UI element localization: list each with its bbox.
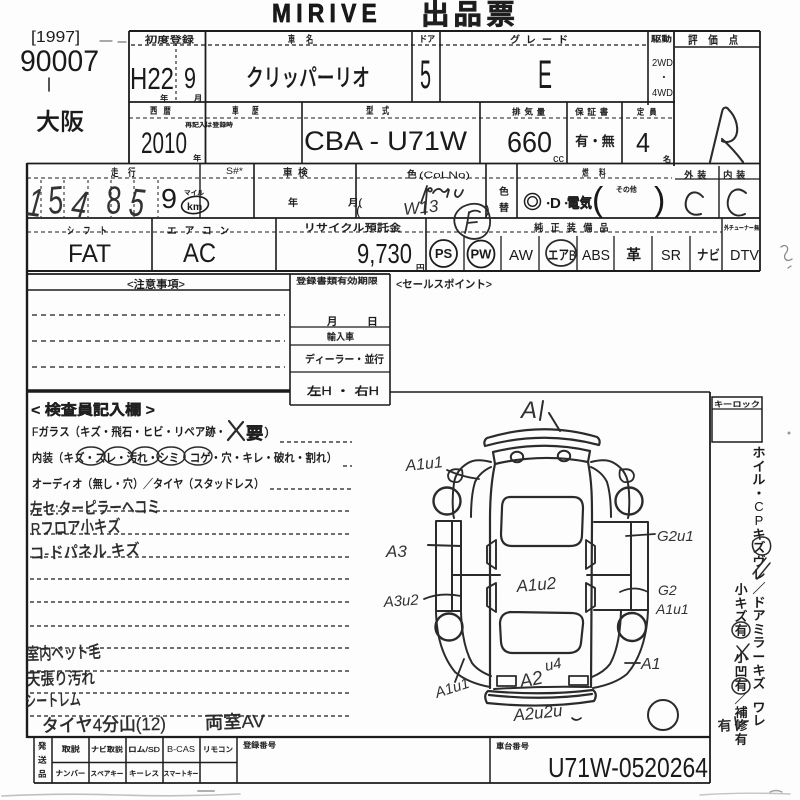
svg-text:A1: A1: [640, 656, 661, 673]
svg-text:): ): [654, 181, 665, 219]
svg-text:駆動: 駆動: [650, 33, 673, 45]
svg-text:車名: 車名: [288, 32, 324, 47]
svg-text:排気量: 排気量: [511, 105, 549, 118]
svg-text:AC: AC: [183, 238, 216, 268]
svg-text:その他: その他: [616, 184, 637, 195]
svg-text:有・無: 有・無: [575, 131, 615, 151]
svg-text:日: 日: [367, 314, 378, 329]
svg-text:A2u2u: A2u2u: [511, 701, 563, 725]
svg-text:CBA - U71W: CBA - U71W: [304, 126, 468, 156]
svg-text:初度登録: 初度登録: [145, 32, 195, 46]
svg-text:ナンバー: ナンバー: [56, 768, 86, 779]
svg-text:<注意事項>: <注意事項>: [127, 276, 185, 292]
svg-text:月: 月: [326, 314, 338, 329]
svg-text:S#*: S#*: [226, 166, 243, 177]
svg-text:Rフロア小キズ: Rフロア小キズ: [30, 512, 121, 540]
svg-text:2WD: 2WD: [652, 57, 673, 69]
svg-text:スマートキー: スマートキー: [164, 769, 199, 779]
svg-text:W13: W13: [402, 196, 439, 219]
svg-text:G2u1: G2u1: [657, 528, 694, 545]
svg-text:5: 5: [420, 53, 431, 97]
svg-text:スペアキー: スペアキー: [91, 769, 124, 779]
svg-text:<セールスポイント>: <セールスポイント>: [396, 276, 492, 292]
svg-text:G2: G2: [658, 582, 677, 598]
svg-text:両室AV: 両室AV: [204, 707, 265, 735]
svg-text:A3u2: A3u2: [382, 592, 420, 612]
svg-text:ロム/SD: ロム/SD: [128, 744, 161, 755]
svg-text:8: 8: [105, 179, 123, 223]
svg-text:クリッパーリオ: クリッパーリオ: [246, 58, 370, 93]
svg-text:品: 品: [38, 768, 47, 780]
svg-text:タイヤ4分山(12): タイヤ4分山(12): [42, 710, 166, 738]
svg-text:ドア: ドア: [419, 32, 435, 45]
svg-text:(: (: [592, 181, 604, 219]
svg-text:リモコン: リモコン: [203, 744, 233, 755]
svg-text:ABS: ABS: [582, 247, 610, 264]
svg-text:9: 9: [161, 183, 177, 214]
svg-text:評価点: 評価点: [688, 32, 749, 48]
svg-text:大阪: 大阪: [36, 102, 84, 137]
svg-text:年: 年: [288, 194, 298, 209]
svg-text:A1u1: A1u1: [655, 601, 689, 617]
svg-text:保証書: 保証書: [574, 105, 612, 118]
svg-text:キーロック: キーロック: [714, 399, 760, 410]
svg-text:レ: レ: [752, 710, 765, 729]
svg-text:左H ・ 右H: 左H ・ 右H: [307, 383, 379, 399]
svg-text:有: 有: [734, 729, 747, 748]
svg-text:リサイクル預託金: リサイクル預託金: [304, 219, 401, 234]
svg-text:[1997]: [1997]: [31, 29, 80, 46]
svg-text:外装: 外装: [684, 167, 710, 181]
svg-text:登録番号: 登録番号: [243, 740, 276, 751]
svg-text:A: A: [519, 397, 537, 424]
svg-text:室内ペット毛: 室内ペット毛: [26, 637, 101, 665]
svg-text:Fガラス（キズ・飛石・ヒビ・リペア跡・: Fガラス（キズ・飛石・ヒビ・リペア跡・: [32, 423, 226, 440]
svg-text:有: 有: [717, 715, 732, 736]
svg-text:純正装備品: 純正装備品: [534, 219, 616, 234]
svg-text:取説: 取説: [62, 744, 80, 755]
svg-text:D: D: [550, 195, 561, 212]
svg-text:A1u1: A1u1: [404, 454, 444, 475]
svg-text:円: 円: [416, 261, 425, 274]
svg-text:MIRIVE: MIRIVE: [272, 0, 382, 28]
svg-text:型式: 型式: [366, 102, 398, 117]
svg-text:AW: AW: [509, 247, 534, 264]
svg-text:車台番号: 車台番号: [496, 741, 529, 752]
svg-text:SR: SR: [661, 247, 681, 264]
svg-text:色: 色: [407, 166, 418, 181]
svg-text:オーディオ（無し・穴）／タイヤ（スタッドレス）: オーディオ（無し・穴）／タイヤ（スタッドレス）: [32, 475, 264, 492]
svg-text:革: 革: [626, 244, 641, 265]
svg-text:A1u1: A1u1: [432, 675, 472, 702]
svg-text:4: 4: [636, 127, 650, 158]
svg-text:ナビ: ナビ: [697, 245, 720, 265]
svg-text:登録書類有効期限: 登録書類有効期限: [296, 274, 379, 287]
svg-text:マイル: マイル: [184, 187, 204, 197]
svg-text:名: 名: [663, 154, 671, 165]
svg-text:送: 送: [37, 754, 47, 766]
svg-text:U71W-0520264: U71W-0520264: [548, 752, 708, 783]
svg-text:年: 年: [193, 153, 201, 164]
svg-text:9: 9: [184, 63, 196, 95]
svg-text:2010: 2010: [141, 127, 187, 160]
svg-text:）: ）: [264, 424, 276, 441]
svg-text:H22: H22: [130, 61, 174, 96]
svg-text:660: 660: [507, 127, 552, 159]
svg-text:ズ: ズ: [752, 673, 765, 692]
svg-text:E: E: [538, 53, 552, 97]
svg-text:グレード: グレード: [510, 31, 574, 46]
svg-text:cc: cc: [553, 153, 565, 165]
svg-text:PW: PW: [471, 247, 493, 262]
svg-text:PS: PS: [435, 246, 453, 261]
svg-text:DTV: DTV: [730, 247, 759, 264]
svg-text:A2: A2: [517, 667, 545, 693]
svg-text:燃料: 燃料: [582, 165, 616, 179]
svg-text:FAT: FAT: [68, 240, 111, 268]
svg-text:9,730: 9,730: [357, 238, 412, 269]
svg-text:A3: A3: [385, 542, 407, 561]
svg-text:西暦: 西暦: [150, 103, 177, 117]
svg-text:走行: 走行: [111, 165, 145, 180]
svg-text:替: 替: [499, 199, 510, 214]
svg-text:ナビ取説: ナビ取説: [91, 744, 124, 755]
svg-text:5: 5: [46, 179, 65, 223]
svg-text:発: 発: [38, 740, 47, 752]
svg-text:電気: 電気: [567, 192, 592, 213]
svg-text:・: ・: [660, 72, 668, 83]
svg-text:車検: 車検: [283, 165, 313, 180]
svg-text:エアコン: エアコン: [167, 222, 237, 237]
svg-text:C: C: [754, 499, 763, 514]
svg-text:4WD: 4WD: [652, 87, 673, 99]
svg-text:B-CAS: B-CAS: [167, 745, 195, 754]
svg-text:内装: 内装: [723, 167, 749, 181]
svg-text:A1u2: A1u2: [515, 574, 558, 597]
svg-text:定員: 定員: [637, 105, 662, 118]
svg-text:輸入車: 輸入車: [327, 329, 354, 343]
svg-text:色: 色: [499, 183, 510, 198]
svg-text:< 検査員記入欄 >: < 検査員記入欄 >: [31, 399, 155, 420]
svg-text:再記入は登録時: 再記入は登録時: [185, 119, 234, 129]
svg-text:(: (: [356, 202, 361, 218]
svg-text:出品票: 出品票: [421, 0, 519, 33]
svg-text:キーレス: キーレス: [129, 768, 159, 779]
svg-text:要: 要: [246, 419, 263, 444]
svg-text:外チューナー無: 外チューナー無: [724, 222, 759, 232]
svg-text:km: km: [187, 201, 202, 213]
svg-text:90007: 90007: [20, 45, 99, 78]
svg-text:(CoLNo): (CoLNo): [419, 170, 470, 180]
svg-text:u4: u4: [543, 655, 563, 675]
svg-text:シートレム: シートレム: [24, 686, 81, 712]
svg-text:コ-ドパネル キズ: コ-ドパネル キズ: [29, 536, 140, 564]
svg-text:車歴: 車歴: [232, 102, 272, 117]
svg-text:ディーラー・並行: ディーラー・並行: [305, 351, 384, 367]
